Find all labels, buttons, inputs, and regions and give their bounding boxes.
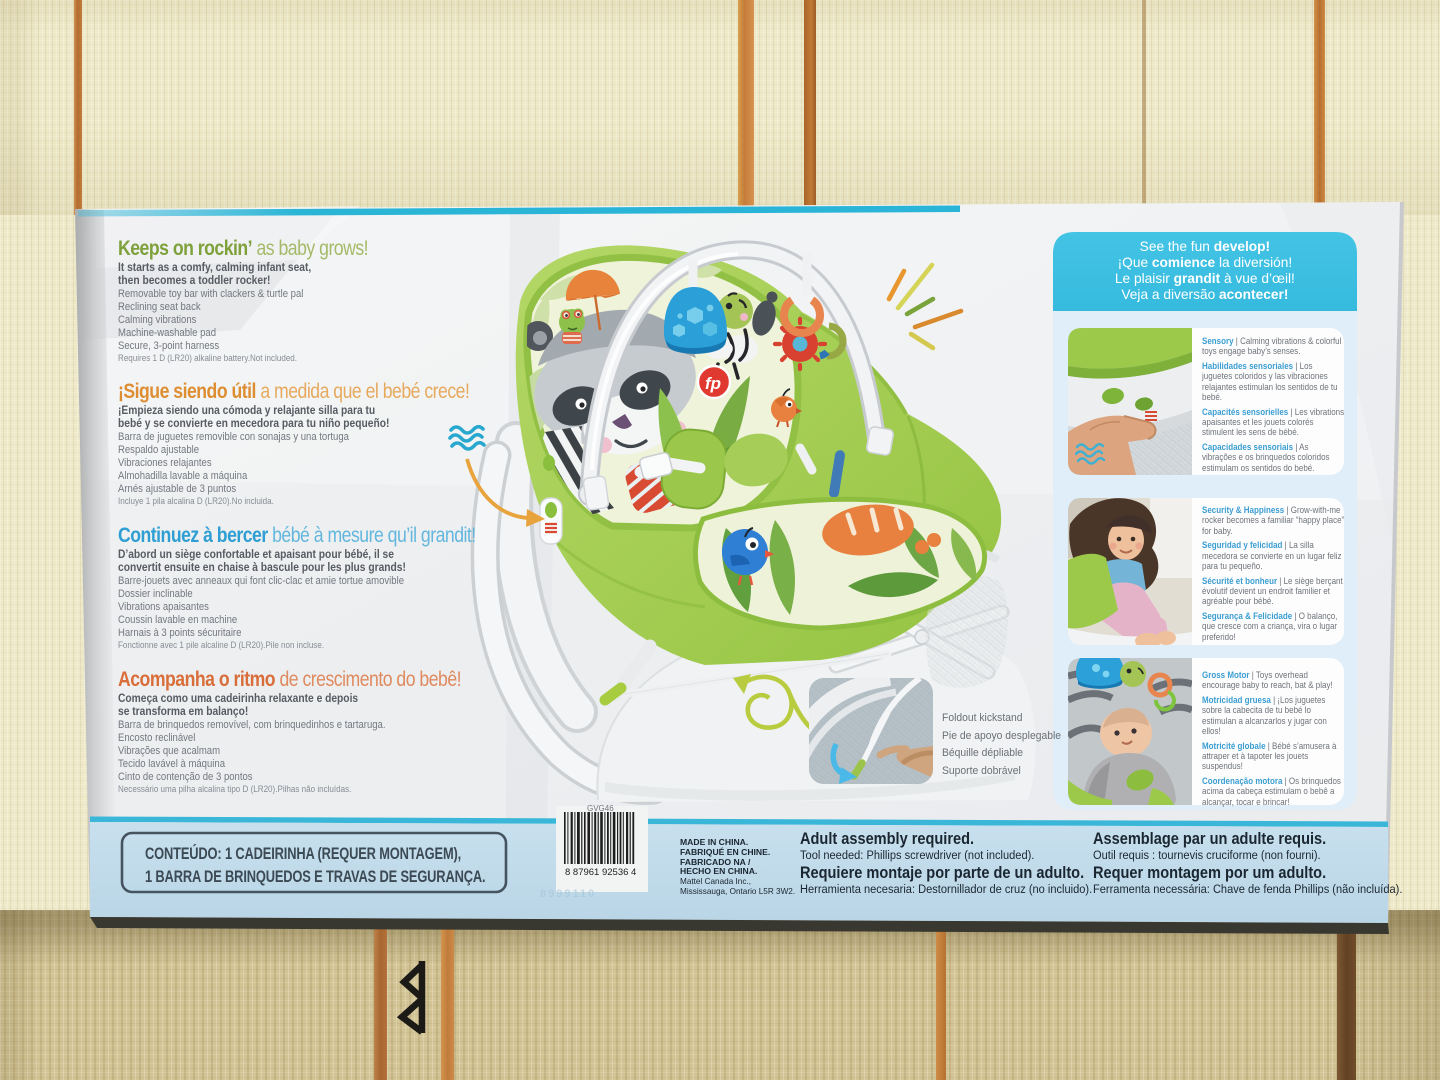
svg-text:8 87961 92536 4: 8 87961 92536 4 xyxy=(565,867,636,878)
svg-text:fp: fp xyxy=(705,374,721,393)
